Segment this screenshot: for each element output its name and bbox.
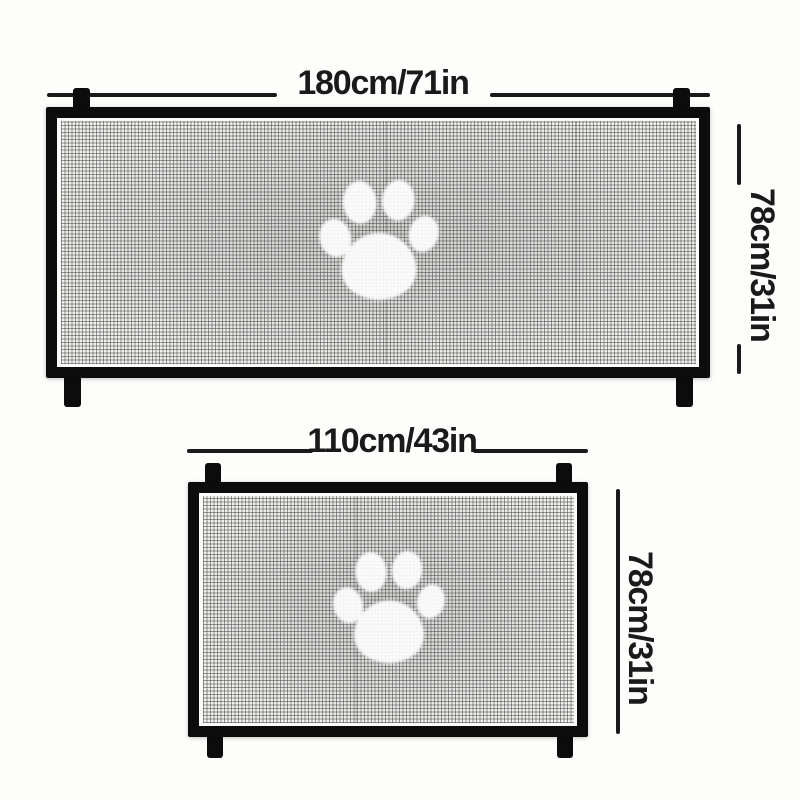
mesh-border-gap xyxy=(199,493,577,726)
height-dimension-line-bottom-large xyxy=(737,344,741,374)
height-dimension-line-top-large xyxy=(737,124,741,185)
paw-print-icon xyxy=(318,180,440,306)
gate-frame-large xyxy=(46,107,710,378)
gate-frame-small xyxy=(188,482,588,737)
paw-print-icon xyxy=(331,551,447,669)
height-dimension-label-large: 78cm/31in xyxy=(742,188,782,342)
width-dimension-label-large: 180cm/71in xyxy=(285,63,481,103)
gate-mesh-large xyxy=(61,121,696,364)
width-dimension-line-left-small xyxy=(187,449,313,453)
width-dimension-line-right-small xyxy=(473,449,588,453)
product-size-diagram: 180cm/71in xyxy=(0,0,800,800)
mesh-fold-seam xyxy=(575,121,577,364)
mesh-border-gap xyxy=(57,118,699,367)
width-dimension-label-small: 110cm/43in xyxy=(296,421,488,461)
height-dimension-label-small: 78cm/31in xyxy=(620,551,660,705)
gate-mesh-small xyxy=(203,496,574,723)
